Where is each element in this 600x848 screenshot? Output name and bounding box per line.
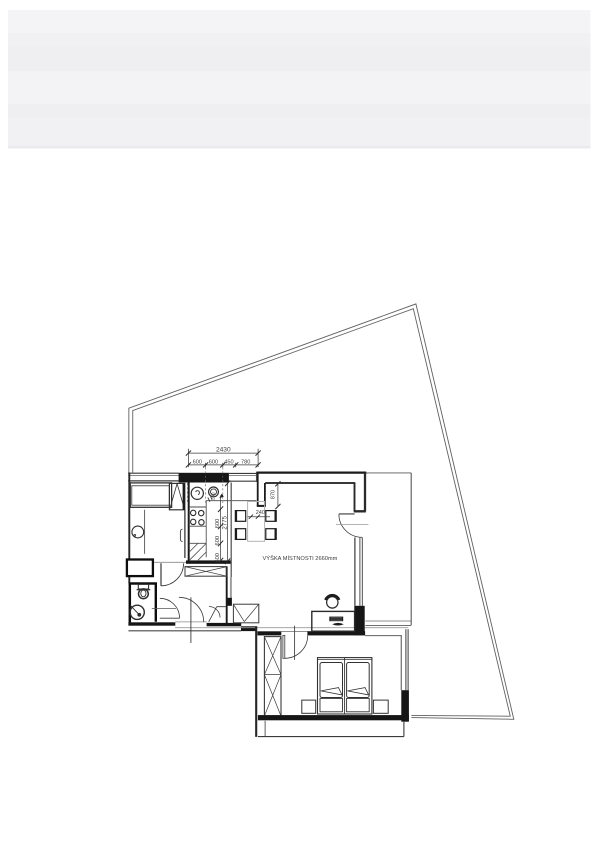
svg-text:600: 600 [215,519,221,529]
svg-text:VÝŠKA MÍSTNOSTI 2660mm: VÝŠKA MÍSTNOSTI 2660mm [263,555,338,562]
svg-text:2430: 2430 [216,446,231,453]
svg-text:870: 870 [270,490,276,499]
svg-text:600: 600 [215,536,221,546]
svg-text:450: 450 [224,459,233,465]
svg-text:600: 600 [193,459,202,465]
svg-text:600: 600 [209,459,218,465]
svg-text:240: 240 [256,510,265,516]
svg-text:780: 780 [241,459,250,465]
svg-text:240: 240 [211,492,216,500]
svg-text:2775: 2775 [221,515,228,529]
svg-text:600: 600 [215,553,221,563]
